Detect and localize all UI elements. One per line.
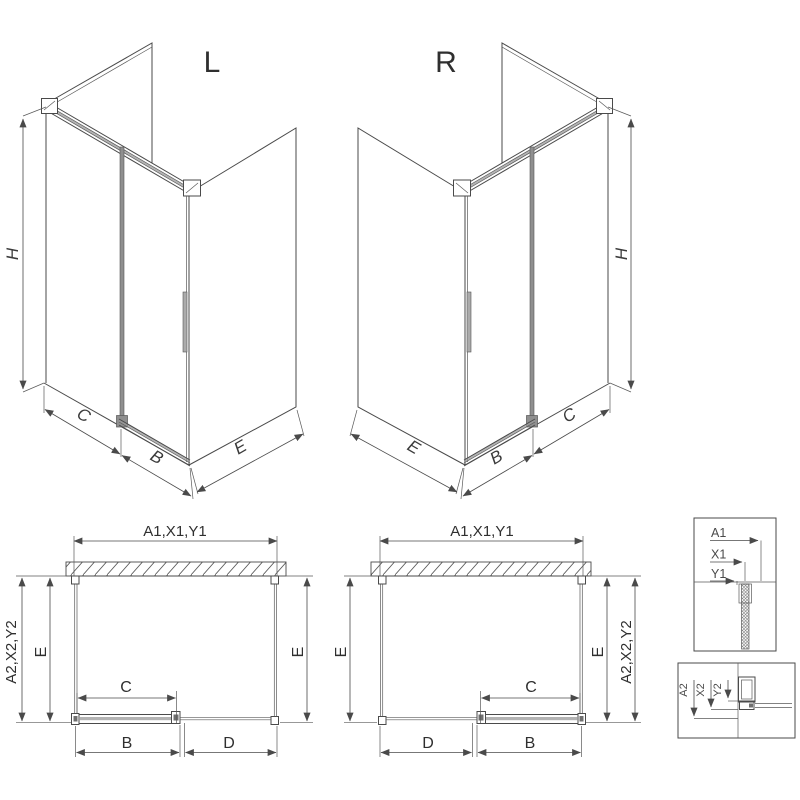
glass-panel-section	[742, 584, 750, 649]
iso-left-label: L	[204, 46, 221, 79]
plan-left-dim-b: B	[122, 735, 133, 752]
detail-floor-dim-x2: X2	[695, 683, 707, 696]
plan-left-dim-c: C	[120, 679, 132, 696]
plan-left-dim-outer: A2,X2,Y2	[3, 620, 20, 683]
plan-left-dim-e-right: E	[290, 647, 307, 658]
plan-right-dim-e-left: E	[333, 647, 350, 658]
plan-right-dim-d: D	[422, 735, 434, 752]
detail-floor-dim-a2: A2	[678, 683, 690, 696]
plan-left-dim-e-left: E	[33, 647, 50, 658]
iso-left-dim-h: H	[3, 247, 22, 260]
technical-drawing-canvas: L H C B E R H C B E A1,X1,Y1 E A2,X2,Y2 …	[0, 0, 800, 800]
detail-wall-profile: A1 X1 Y1	[694, 518, 776, 651]
detail-wall-dim-x1: X1	[711, 548, 726, 562]
plan-right-dim-b: B	[525, 735, 536, 752]
detail-wall-dim-a1: A1	[711, 526, 726, 540]
detail-floor-profile: A2 X2 Y2	[678, 663, 795, 738]
plan-left-dim-width: A1,X1,Y1	[143, 523, 206, 540]
plan-right-dim-width: A1,X1,Y1	[450, 523, 513, 540]
iso-right-dim-h: H	[612, 247, 631, 260]
wall-section	[66, 562, 286, 576]
wall-section	[371, 562, 591, 576]
iso-right-label: R	[435, 46, 457, 79]
plan-right-dim-e-right: E	[590, 647, 607, 658]
shower-enclosure-technical-drawing: L H C B E R H C B E A1,X1,Y1 E A2,X2,Y2 …	[0, 0, 800, 800]
plan-right-dim-c: C	[525, 679, 537, 696]
plan-right-dim-outer: A2,X2,Y2	[618, 620, 635, 683]
detail-wall-dim-y1: Y1	[711, 567, 726, 581]
plan-left-dim-d: D	[223, 735, 235, 752]
detail-floor-dim-y2: Y2	[712, 683, 724, 696]
